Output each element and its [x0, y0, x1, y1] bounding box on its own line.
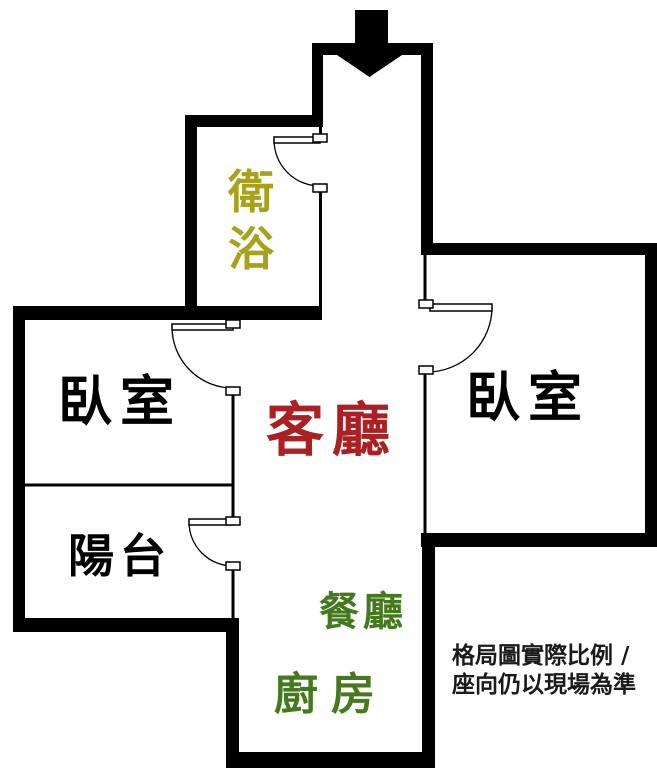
door-jamb [419, 300, 433, 308]
doors [172, 134, 492, 570]
door-jamb [226, 320, 240, 328]
kitchen-label: 廚房 [274, 672, 388, 718]
balcony-door [189, 517, 240, 570]
bedroom-right-door-arc [427, 307, 492, 372]
wall-balcony-bottom [13, 618, 239, 632]
door-jamb [226, 387, 240, 395]
door-jamb [313, 184, 327, 192]
bathroom-door-arc [274, 140, 320, 186]
wall-entry-left [312, 43, 323, 127]
wall-bathroom-left [185, 115, 197, 320]
balcony-label: 陽台 [68, 532, 172, 580]
door-jamb [226, 517, 240, 525]
disclaimer-note: 格局圖實際比例 / 座向仍以現場為準 [452, 642, 636, 700]
bathroom-door [274, 134, 327, 192]
bedroom-left-label: 臥室 [58, 374, 182, 431]
bedroom-right-door [419, 300, 492, 374]
wall-left-outer [13, 306, 25, 632]
bedroom-right-door-leaf [430, 304, 492, 311]
disclaimer-line-1: 格局圖實際比例 / [452, 642, 636, 671]
wall-bedroom-right-top [421, 243, 657, 255]
bedroom-left-door [172, 320, 240, 395]
wall-entry-right [421, 43, 433, 250]
bathroom-label: 衛浴 [224, 164, 278, 278]
floorplan: 衛浴 臥室 客廳 臥室 陽台 餐廳 廚房 格局圖實際比例 / 座向仍以現場為準 [0, 0, 657, 776]
balcony-door-arc [189, 522, 233, 566]
wall-bedroom-right-bottom [421, 533, 657, 547]
wall-bathroom-top [185, 115, 323, 127]
door-jamb [226, 562, 240, 570]
wall-kitchen-bottom [226, 752, 435, 768]
dining-room-label: 餐廳 [319, 591, 407, 633]
bedroom-left-door-leaf [172, 324, 233, 330]
wall-bedroom-left-top [13, 306, 322, 320]
wall-right-outer [645, 243, 657, 547]
disclaimer-line-2: 座向仍以現場為準 [452, 671, 636, 700]
wall-lower-right [422, 540, 435, 768]
door-jamb [419, 366, 433, 374]
bedroom-right-label: 臥室 [466, 370, 590, 427]
door-jamb [313, 134, 327, 142]
living-room-label: 客廳 [266, 400, 398, 461]
wall-kitchen-left [226, 618, 239, 768]
